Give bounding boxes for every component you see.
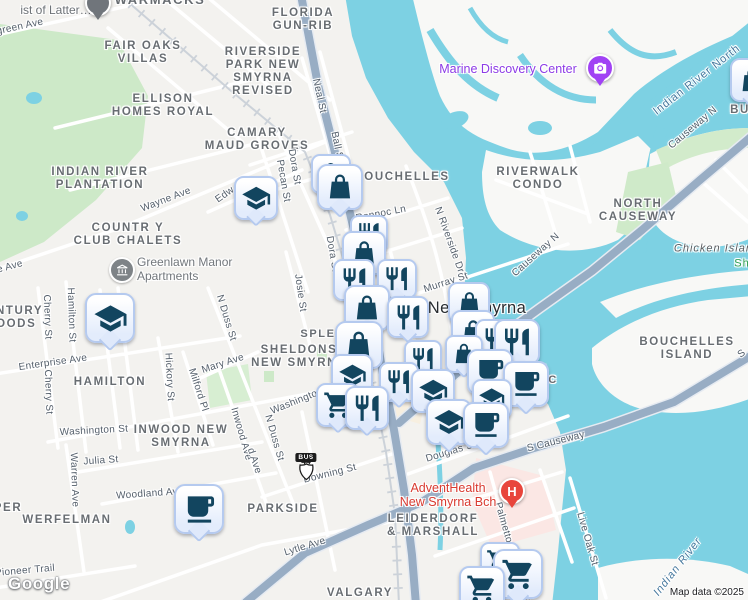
map-viewport[interactable]: WARMACKSFLORIDAGUN-RIBFAIR OAKSVILLASRIV… xyxy=(0,0,748,600)
map-canvas[interactable] xyxy=(0,0,748,600)
